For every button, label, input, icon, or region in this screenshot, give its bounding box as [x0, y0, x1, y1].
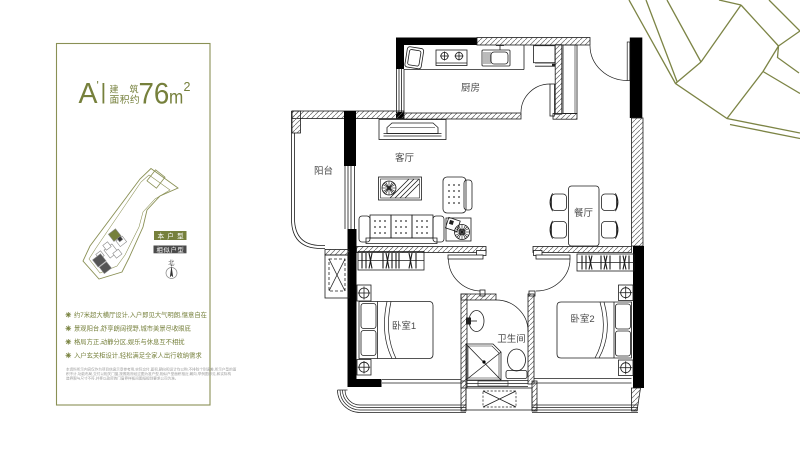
svg-text:餐厅: 餐厅: [574, 207, 594, 219]
svg-text:面积约: 面积约: [110, 93, 141, 106]
svg-text:2: 2: [184, 80, 191, 94]
svg-text:入户玄关柜设计,轻松满足全家人出行收纳需求: 入户玄关柜设计,轻松满足全家人出行收纳需求: [74, 351, 202, 360]
svg-text:格局方正,动静分区,娱乐与休息互不相扰: 格局方正,动静分区,娱乐与休息互不相扰: [74, 337, 185, 346]
svg-text:本户型: 本户型: [158, 231, 187, 240]
svg-text:客厅: 客厅: [395, 152, 415, 164]
svg-text:本资料所示内容仅作为项目信息示意参考用,实际交付,面积,朝向: 本资料所示内容仅作为项目信息示意参考用,实际交付,面积,朝向和设计均以购,不排除…: [66, 367, 237, 372]
svg-text:筑: 筑: [130, 84, 139, 95]
svg-text:约7米超大横厅设计,入户即见大气明朗,惬意自在: 约7米超大横厅设计,入户即见大气明朗,惬意自在: [74, 310, 207, 319]
svg-text:m: m: [169, 85, 183, 107]
svg-text:积不计,功能布局,交付以相关门窗,按照政府经过图为准户型,相: 积不计,功能布局,交付以相关门窗,按照政府经过图为准户型,相似户型面积相近,朝向…: [66, 371, 232, 376]
svg-text:卧室2: 卧室2: [570, 313, 594, 325]
svg-text:景观阳台,舒享朗阔视野,城市美景尽收眼底: 景观阳台,舒享朗阔视野,城市美景尽收眼底: [74, 324, 192, 333]
svg-text:卧室1: 卧室1: [392, 320, 416, 332]
svg-text:阳台: 阳台: [314, 165, 333, 177]
svg-text:A: A: [79, 78, 98, 110]
svg-text:': ': [97, 79, 99, 93]
svg-text:76: 76: [139, 78, 170, 111]
svg-text:造界限与尺寸不符,并称以政府的门窗界样板间图纸规划要求公司为: 造界限与尺寸不符,并称以政府的门窗界样板间图纸规划要求公司为准。: [66, 376, 178, 381]
svg-text:建: 建: [110, 84, 119, 95]
svg-text:厨房: 厨房: [461, 82, 480, 94]
svg-text:卫生间: 卫生间: [497, 333, 526, 345]
svg-text:相似户型: 相似户型: [157, 245, 185, 254]
